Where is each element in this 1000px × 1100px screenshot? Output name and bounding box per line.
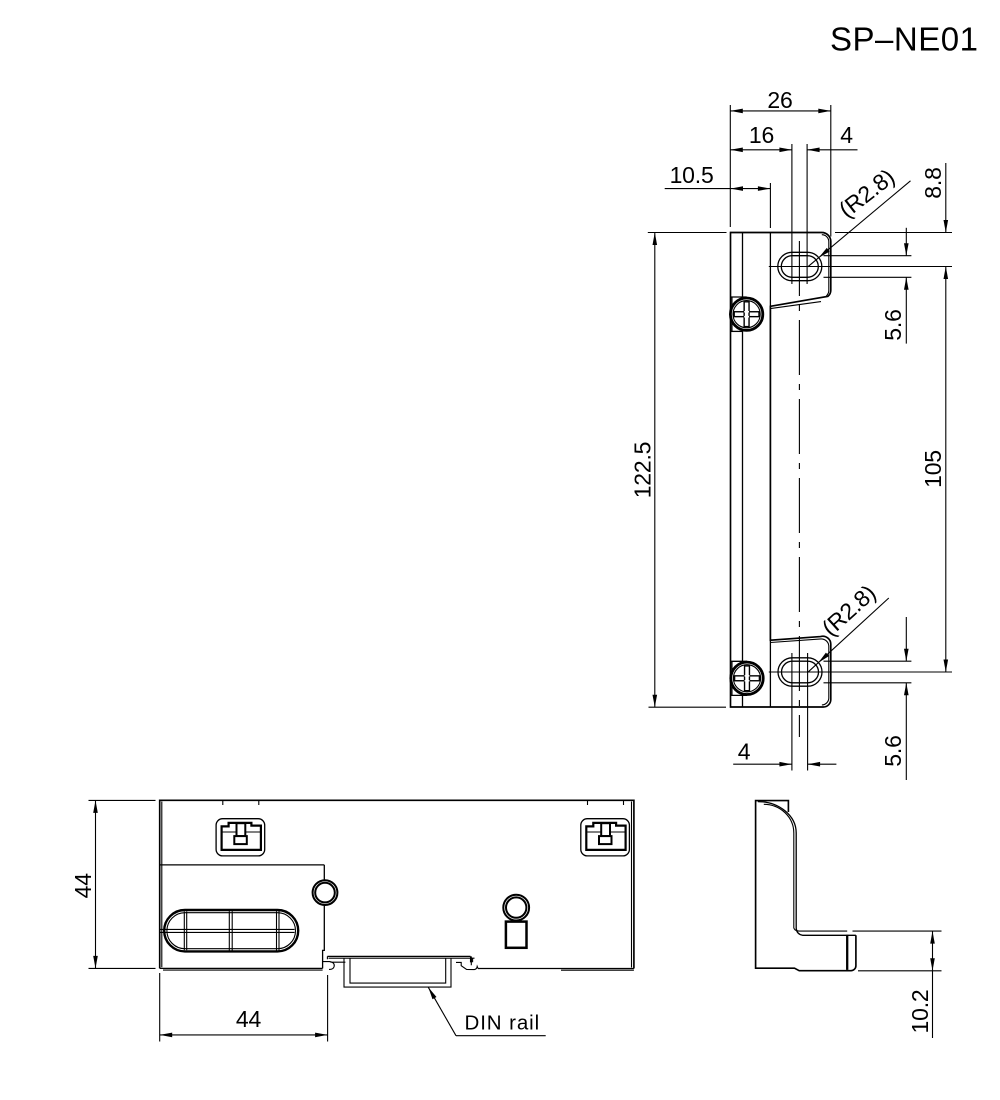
svg-text:44: 44 (236, 1006, 262, 1032)
svg-text:DIN rail: DIN rail (465, 1012, 541, 1035)
svg-text:10.5: 10.5 (670, 162, 714, 188)
svg-text:4: 4 (738, 739, 751, 765)
svg-text:122.5: 122.5 (630, 442, 656, 499)
svg-text:26: 26 (767, 87, 792, 113)
svg-text:(R2.8): (R2.8) (817, 580, 881, 641)
svg-text:105: 105 (920, 450, 946, 488)
svg-text:44: 44 (70, 873, 96, 899)
svg-text:SP–NE01: SP–NE01 (830, 21, 978, 58)
svg-text:8.8: 8.8 (920, 167, 946, 198)
svg-text:5.6: 5.6 (880, 309, 906, 340)
svg-text:(R2.8): (R2.8) (834, 164, 899, 223)
svg-text:10.2: 10.2 (907, 990, 933, 1034)
svg-text:5.6: 5.6 (880, 735, 906, 766)
svg-text:4: 4 (840, 122, 853, 148)
svg-text:16: 16 (749, 122, 774, 148)
